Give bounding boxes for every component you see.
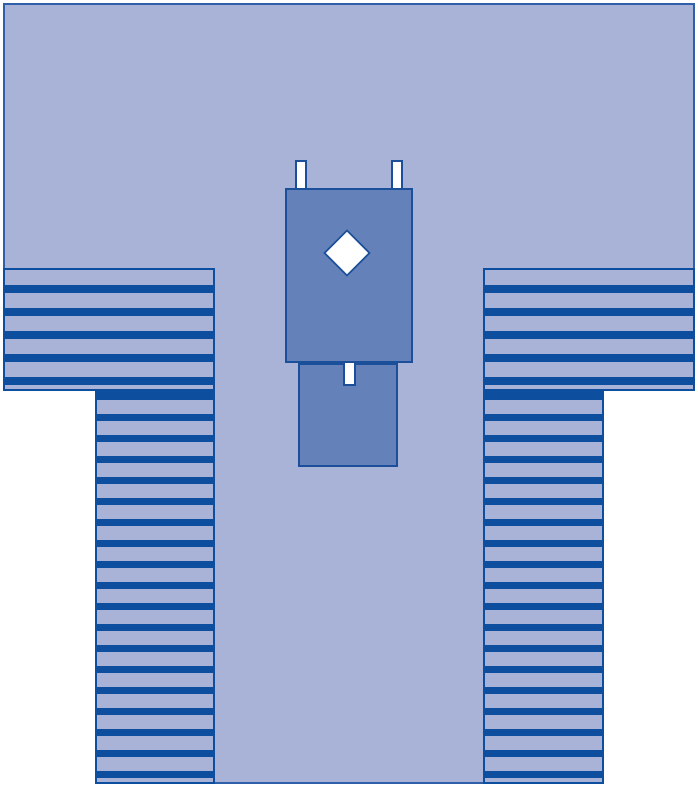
left-shoulder-striped-panel [3,268,215,391]
top-right-tab [391,160,403,190]
drape-diagram [0,0,698,787]
lower-center-tab [343,363,356,386]
left-leg-striped-panel [95,391,215,784]
right-shoulder-striped-panel [483,268,695,391]
upper-pad [285,188,413,363]
right-leg-striped-panel [483,391,604,784]
top-left-tab [295,160,307,190]
